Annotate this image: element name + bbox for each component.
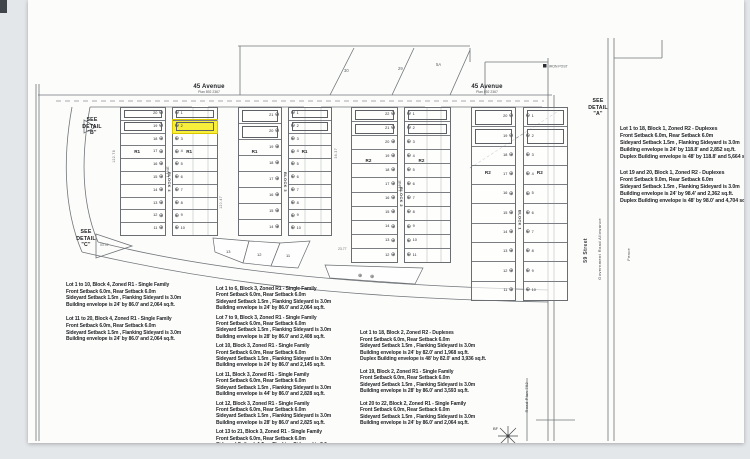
lot-number: 7 — [297, 189, 299, 193]
zoning-note-line: Building envelope is 24' by 86.0' and 2,… — [216, 305, 358, 311]
lot-number: 20 — [153, 112, 157, 116]
utility-marker-icon: ⊕ — [526, 192, 531, 198]
lot-number: 6 — [413, 183, 415, 187]
lot: 17⊕ — [239, 171, 281, 187]
utility-marker-icon: ⊕ — [391, 196, 396, 202]
lot: ⊕7 — [524, 223, 567, 242]
lot: ⊕5 — [524, 184, 567, 203]
lot-number: 15 — [385, 211, 389, 215]
lot-number: 4 — [532, 173, 534, 177]
lot-column-e-block-4: ⊕1⊕2⊕3⊕4⊕5⊕6⊕7⊕8⊕9⊕10R1 — [172, 107, 218, 236]
utility-marker-icon: ⊕ — [275, 113, 280, 119]
lot: 17⊕ — [121, 145, 165, 158]
lot: 18⊕ — [352, 163, 397, 177]
lot: ⊕10 — [289, 222, 331, 235]
utility-marker-icon: ⊕ — [509, 153, 514, 159]
lot: ⊕9 — [173, 209, 217, 222]
lot-number: 6 — [181, 176, 183, 180]
utility-marker-icon: ⊕ — [407, 182, 412, 188]
zone-label: R1 — [186, 150, 192, 155]
utility-marker-icon: ⊕ — [175, 150, 180, 156]
utility-marker-icon: ⊕ — [159, 150, 164, 156]
plat-group-block-4: 20⊕19⊕18⊕17⊕16⊕15⊕14⊕13⊕12⊕11⊕R1⊕1⊕2⊕3⊕4… — [120, 107, 218, 236]
utility-marker-icon: ⊕ — [407, 253, 412, 259]
dimension-text: 53.92 — [100, 244, 109, 247]
note-column-2: Lot 1 to 18, Block 2, Zoned R2 - Duplexe… — [360, 330, 510, 433]
lot-number: 15 — [503, 212, 507, 216]
utility-marker-icon: ⊕ — [175, 175, 180, 181]
zoning-note-block: Lot 11 to 20, Block 4, Zoned R1 - Single… — [66, 316, 216, 342]
lot-column-e-block-3: ⊕1⊕2⊕3⊕4⊕5⊕6⊕7⊕8⊕9⊕10R1 — [288, 107, 332, 236]
utility-marker-icon: ⊕ — [275, 145, 280, 151]
utility-marker-icon: ⊕ — [526, 134, 531, 140]
utility-marker-icon: ⊕ — [391, 182, 396, 188]
zone-label: R1 — [134, 150, 140, 155]
utility-marker-icon: ⊕ — [275, 225, 280, 231]
utility-marker-icon: ⊕ — [407, 210, 412, 216]
utility-marker-icon: ⊕ — [526, 114, 531, 120]
zoning-note-block: Lot 1 to 18, Block 2, Zoned R2 - Duplexe… — [360, 330, 510, 363]
lot: 14⊕ — [472, 223, 515, 242]
scan-corner-artifact — [0, 0, 7, 13]
zoning-note-line: Building envelope is 24' by 118.8' and 2… — [620, 147, 744, 154]
plan-number: Plan 892 2367 — [178, 90, 240, 94]
utility-marker-icon: ⊕ — [159, 226, 164, 232]
utility-marker-icon: ⊕ — [159, 201, 164, 207]
zoning-note-line: Duplex Building envelope is 48' by 98.0'… — [620, 198, 744, 205]
utility-marker-icon: ⊕ — [391, 168, 396, 174]
lot-column-w-block-2: 22⊕21⊕20⊕19⊕18⊕17⊕16⊕15⊕14⊕13⊕12⊕R2 — [351, 107, 398, 263]
utility-marker-icon: ⊕ — [275, 209, 280, 215]
utility-marker-icon: ⊕ — [175, 137, 180, 143]
zoning-note-line: Duplex Building envelope is 48' by 82.0'… — [360, 356, 510, 363]
lot-number: 13 — [385, 239, 389, 243]
lot: ⊕2 — [405, 121, 450, 135]
lot-number: 7 — [181, 189, 183, 193]
lot: 22⊕ — [352, 108, 397, 121]
zone-label: R1 — [302, 150, 308, 155]
zoning-note-line: Lot 11 to 20, Block 4, Zoned R1 - Single… — [66, 316, 216, 323]
lot: 19⊕ — [121, 120, 165, 133]
lot: 15⊕ — [121, 171, 165, 184]
lot-number: 8 — [532, 250, 534, 254]
lot-number: 1 — [413, 113, 415, 117]
lot: ⊕1 — [289, 108, 331, 120]
dimension-text: 120.47 — [220, 196, 223, 209]
lot-number: 13 — [503, 250, 507, 254]
utility-marker-icon: ⊕ — [159, 111, 164, 117]
see-detail-a-callout: SEE DETAIL "A" — [580, 98, 616, 118]
lot: ⊕4 — [173, 145, 217, 158]
lot: ⊕8 — [524, 242, 567, 261]
utility-marker-icon: ⊕ — [509, 230, 514, 236]
lot: 20⊕ — [472, 108, 515, 126]
utility-marker-icon: ⊕ — [407, 168, 412, 174]
utility-marker-icon: ⊕ — [509, 114, 514, 120]
utility-marker-icon: ⊕ — [526, 230, 531, 236]
utility-marker-icon: ⊕ — [391, 253, 396, 259]
zoning-note-block: Lot 10, Block 3, Zoned R1 - Single Famil… — [216, 343, 358, 369]
lot-number: 17 — [269, 178, 273, 182]
lot: ⊕2 — [524, 126, 567, 145]
lot: ⊕6 — [524, 203, 567, 222]
lane-block-2: LANE — [398, 107, 404, 263]
lot-number: 5 — [297, 163, 299, 167]
lot-number: 19 — [269, 146, 273, 150]
lot: 21⊕ — [239, 108, 281, 123]
lot: ⊕7 — [173, 184, 217, 197]
lot-number: 9 — [532, 270, 534, 274]
lot-number: 11 — [413, 254, 417, 258]
zoning-note-line: Building envelope is 28' by 86.0' and 2,… — [216, 334, 358, 340]
utility-marker-icon: ⊕ — [526, 172, 531, 178]
lot-number: 16 — [503, 192, 507, 196]
lot: ⊕8 — [405, 206, 450, 220]
lot-number: 15 — [269, 210, 273, 214]
lot: 14⊕ — [121, 184, 165, 197]
lot: 11⊕ — [472, 281, 515, 300]
lot-number: 12 — [503, 270, 507, 274]
dimension-text: 122.78 — [113, 150, 116, 163]
utility-marker-icon: ⊕ — [407, 196, 412, 202]
lot-number: 22 — [385, 113, 389, 117]
note-column-0: Lot 1 to 10, Block 4, Zoned R1 - Single … — [66, 282, 216, 351]
lot-number: 14 — [503, 231, 507, 235]
lot-number: 15 — [153, 176, 157, 180]
utility-marker-icon: ⊕ — [509, 288, 514, 294]
utility-marker-icon: ⊕ — [159, 214, 164, 220]
lot-number: 2 — [532, 135, 534, 139]
utility-marker-icon: ⊕ — [509, 192, 514, 198]
utility-marker-icon: ⊕ — [407, 154, 412, 160]
zoning-note-block: Lot 19 and 20, Block 1, Zoned R2 - Duple… — [620, 170, 744, 205]
lot: 18⊕ — [121, 133, 165, 146]
lot: 19⊕ — [472, 126, 515, 145]
lot: ⊕3 — [289, 133, 331, 146]
utility-marker-icon: ⊕ — [291, 111, 296, 117]
lot: ⊕5 — [173, 158, 217, 171]
zoning-note-block: Lot 12, Block 3, Zoned R1 - Single Famil… — [216, 401, 358, 427]
zoning-note-line: Lot 1 to 10, Block 4, Zoned R1 - Single … — [66, 282, 216, 289]
plan-number: Plan 892 2367 — [456, 90, 518, 94]
utility-marker-icon: ⊕ — [391, 210, 396, 216]
lot: ⊕5 — [289, 158, 331, 171]
utility-marker-icon: ⊕ — [407, 112, 412, 118]
utility-marker-icon: ⊕ — [175, 201, 180, 207]
zone-label: R2 — [537, 171, 543, 176]
lot-number: 16 — [269, 194, 273, 198]
lot: ⊕7 — [289, 184, 331, 197]
zoning-note-line: Building envelope is 28' by 86.0' and 2,… — [216, 420, 358, 426]
lot: 21⊕ — [352, 121, 397, 135]
utility-marker-icon: ⊕ — [159, 188, 164, 194]
lot: ⊕8 — [289, 197, 331, 210]
utility-marker-icon: ⊕ — [275, 161, 280, 167]
plat-scan-page: 13 12 11 ⊕ ⊕ 30 29 5A IRON POST BF 20⊕19… — [0, 0, 750, 459]
note-column-3: Lot 1 to 18, Block 1, Zoned R2 - Duplexe… — [620, 126, 744, 214]
utility-marker-icon: ⊕ — [175, 111, 180, 117]
zoning-note-block: Lot 7 to 9, Block 3, Zoned R1 - Single F… — [216, 315, 358, 341]
lot-number: 8 — [413, 211, 415, 215]
lot-number: 4 — [181, 150, 183, 154]
lot-number: 18 — [503, 154, 507, 158]
lot-number: 14 — [269, 226, 273, 230]
lot: 15⊕ — [352, 206, 397, 220]
lot-number: 12 — [385, 254, 389, 258]
lot-number: 18 — [269, 162, 273, 166]
utility-marker-icon: ⊕ — [291, 150, 296, 156]
zoning-note-line: Lot 19 and 20, Block 1, Zoned R2 - Duple… — [620, 170, 744, 177]
utility-marker-icon: ⊕ — [526, 153, 531, 159]
zoning-note-block: Lot 13 to 21, Block 3, Zoned R1 - Single… — [216, 429, 358, 443]
lot: ⊕9 — [405, 220, 450, 234]
lane-block-1 — [516, 107, 523, 301]
lot-number: 21 — [269, 114, 273, 118]
zoning-note-line: Sideyard Setback 1.5m , Flanking Sideyar… — [66, 330, 216, 337]
lot: ⊕8 — [173, 197, 217, 210]
lot: 17⊕ — [352, 177, 397, 191]
lot: 14⊕ — [239, 219, 281, 235]
lot-column-w-block-1: 20⊕19⊕18⊕17⊕16⊕15⊕14⊕13⊕12⊕11⊕R2 — [471, 107, 516, 301]
zoning-note-line: Duplex Building envelope is 48' by 118.8… — [620, 154, 744, 161]
utility-marker-icon: ⊕ — [291, 214, 296, 220]
lot: ⊕1 — [405, 108, 450, 121]
lot: ⊕4 — [524, 165, 567, 184]
lot: 18⊕ — [239, 155, 281, 171]
lot-number: 20 — [269, 130, 273, 134]
lot-number: 20 — [385, 141, 389, 145]
dimension-text: 23.77 — [338, 248, 347, 251]
lot-number: 8 — [181, 202, 183, 206]
gov-road-allowance-label: Government Road Allowance — [598, 218, 602, 280]
lot-number: 5 — [532, 192, 534, 196]
lot-number: 11 — [503, 289, 507, 293]
lot-number: 18 — [153, 138, 157, 142]
utility-marker-icon: ⊕ — [391, 225, 396, 231]
zoning-note-line: Sideyard Setback 1.5m , Flanking Sideyar… — [216, 442, 358, 443]
zone-label: R2 — [485, 171, 491, 176]
lot: ⊕1 — [524, 108, 567, 126]
utility-marker-icon: ⊕ — [291, 226, 296, 232]
lot-number: 9 — [181, 214, 183, 218]
lot-number: 17 — [385, 183, 389, 187]
zoning-note-line: Building envelope is 44' by 86.0' and 2,… — [216, 391, 358, 397]
utility-marker-icon: ⊕ — [291, 137, 296, 143]
zoning-note-line: Front Setback 6.0m, Rear Setback 6.0m — [66, 323, 216, 330]
utility-marker-icon: ⊕ — [526, 249, 531, 255]
lot-number: 10 — [532, 289, 536, 293]
lot-number: 1 — [532, 115, 534, 119]
avenue-45-label-west: 45 Avenue Plan 892 2367 — [178, 84, 240, 94]
lot-number: 3 — [413, 141, 415, 145]
zoning-note-line: Building envelope is 24' by 86.0' and 2,… — [66, 336, 216, 343]
lot: 17⊕ — [472, 165, 515, 184]
lot: 20⊕ — [121, 108, 165, 120]
plat-group-block-1: 20⊕19⊕18⊕17⊕16⊕15⊕14⊕13⊕12⊕11⊕R2⊕1⊕2⊕3⊕4… — [471, 107, 568, 301]
utility-marker-icon: ⊕ — [175, 214, 180, 220]
lot-number: 16 — [153, 163, 157, 167]
lot-highlighted: ⊕2 — [173, 120, 217, 133]
lot-number: 11 — [153, 227, 157, 231]
lot-number: 10 — [181, 227, 185, 231]
fence-label: Fence — [628, 248, 632, 261]
lot-column-e-block-2: ⊕1⊕2⊕3⊕4⊕5⊕6⊕7⊕8⊕9⊕10⊕11R2 — [404, 107, 451, 263]
lot: 16⊕ — [472, 184, 515, 203]
zoning-note-line: Building envelope is 24' by 86.0' and 2,… — [360, 420, 510, 427]
lot: ⊕10 — [405, 234, 450, 248]
lot-number: 4 — [413, 155, 415, 159]
utility-marker-icon: ⊕ — [175, 162, 180, 168]
zoning-note-line: Front Setback 6.0m, Rear Setback 6.0m — [66, 289, 216, 296]
lot-number: 21 — [385, 127, 389, 131]
lot-number: 3 — [181, 138, 183, 142]
utility-marker-icon: ⊕ — [526, 269, 531, 275]
zoning-note-line: Sideyard Setback 1.5m , Flanking Sideyar… — [620, 140, 744, 147]
utility-marker-icon: ⊕ — [407, 225, 412, 231]
lot-number: 4 — [297, 150, 299, 154]
lot: 16⊕ — [352, 192, 397, 206]
zoning-note-block: Lot 11, Block 3, Zoned R1 - Single Famil… — [216, 372, 358, 398]
utility-marker-icon: ⊕ — [159, 162, 164, 168]
utility-marker-icon: ⊕ — [291, 201, 296, 207]
lot-number: 5 — [181, 163, 183, 167]
lot: 13⊕ — [352, 234, 397, 248]
utility-marker-icon: ⊕ — [509, 249, 514, 255]
zoning-note-line: Sideyard Setback 1.5m , Flanking Sideyar… — [66, 295, 216, 302]
utility-marker-icon: ⊕ — [275, 129, 280, 135]
lot: 16⊕ — [239, 187, 281, 203]
block-label: BLOCK 3 — [283, 172, 287, 192]
street-59-label: 59 Street — [584, 238, 589, 263]
zoning-note-line: Front Setback 6.0m, Rear Setback 6.0m — [620, 133, 744, 140]
lot: 20⊕ — [352, 135, 397, 149]
lot: ⊕9 — [524, 261, 567, 280]
block-label: BLOCK 4 — [167, 172, 171, 192]
lot: ⊕3 — [405, 135, 450, 149]
lot-number: 12 — [153, 214, 157, 218]
lot: 13⊕ — [121, 197, 165, 210]
lot-number: 1 — [297, 112, 299, 116]
block-label: BLOCK 2 — [399, 188, 403, 208]
road-plan-label: Road Plan 792 — [526, 382, 530, 412]
block-label: BLOCK 1 — [518, 210, 522, 230]
lot: ⊕4 — [289, 145, 331, 158]
utility-marker-icon: ⊕ — [159, 175, 164, 181]
utility-marker-icon: ⊕ — [159, 124, 164, 130]
lot: ⊕3 — [173, 133, 217, 146]
lot: 20⊕ — [239, 123, 281, 139]
avenue-45-label-east: 45 Avenue Plan 892 2367 — [456, 84, 518, 94]
lot-number: 9 — [297, 214, 299, 218]
zoning-note-line: Front Setback 9.0m, Rear Setback 6.0m — [620, 177, 744, 184]
see-detail-c-callout: SEE DETAIL "C" — [68, 229, 104, 249]
lot: 14⊕ — [352, 220, 397, 234]
utility-marker-icon: ⊕ — [509, 269, 514, 275]
lot: 19⊕ — [352, 149, 397, 163]
utility-marker-icon: ⊕ — [291, 188, 296, 194]
zoning-note-block: Lot 20 to 22, Block 2, Zoned R1 - Single… — [360, 401, 510, 427]
lot: ⊕10 — [524, 281, 567, 300]
utility-marker-icon: ⊕ — [159, 137, 164, 143]
lot-number: 7 — [413, 197, 415, 201]
lot-number: 5 — [413, 169, 415, 173]
lot-number: 1 — [181, 112, 183, 116]
lot: ⊕4 — [405, 149, 450, 163]
zoning-note-line: Building envelope is 24' by 86.0' and 2,… — [66, 302, 216, 309]
utility-marker-icon: ⊕ — [526, 211, 531, 217]
zoning-note-block: Lot 19, Block 2, Zoned R1 - Single Famil… — [360, 369, 510, 395]
lot-number: 6 — [532, 212, 534, 216]
lot-number: 17 — [503, 173, 507, 177]
lot-number: 2 — [413, 127, 415, 131]
utility-marker-icon: ⊕ — [509, 211, 514, 217]
lot-number: 10 — [413, 239, 417, 243]
lot-number: 14 — [153, 189, 157, 193]
utility-marker-icon: ⊕ — [291, 175, 296, 181]
lot-number: 2 — [181, 125, 183, 129]
lot: ⊕6 — [173, 171, 217, 184]
lot: 11⊕ — [121, 222, 165, 235]
utility-marker-icon: ⊕ — [407, 239, 412, 245]
utility-marker-icon: ⊕ — [175, 226, 180, 232]
lot-column-w-block-4: 20⊕19⊕18⊕17⊕16⊕15⊕14⊕13⊕12⊕11⊕R1 — [120, 107, 166, 236]
lot-number: 6 — [297, 176, 299, 180]
lot-number: 3 — [297, 138, 299, 142]
lot: 15⊕ — [472, 203, 515, 222]
lot: 12⊕ — [121, 209, 165, 222]
lot-number: 19 — [385, 155, 389, 159]
zoning-note-block: Lot 1 to 18, Block 1, Zoned R2 - Duplexe… — [620, 126, 744, 161]
lot-number: 18 — [385, 169, 389, 173]
lot-column-e-block-1: ⊕1⊕2⊕3⊕4⊕5⊕6⊕7⊕8⊕9⊕10R2 — [523, 107, 568, 301]
lot-number: 14 — [385, 225, 389, 229]
lot-number: 20 — [503, 115, 507, 119]
zoning-note-line: Building envelope is 28' by 86.0' and 3,… — [360, 388, 510, 395]
lot-number: 13 — [153, 202, 157, 206]
dimension-text: 36.37 — [335, 148, 338, 159]
zone-label: R1 — [252, 150, 258, 155]
lot: ⊕7 — [405, 192, 450, 206]
lot: ⊕1 — [173, 108, 217, 120]
lot-number: 19 — [153, 125, 157, 129]
lot-number: 10 — [297, 227, 301, 231]
lot: ⊕6 — [405, 177, 450, 191]
lot: ⊕5 — [405, 163, 450, 177]
lot-number: 3 — [532, 154, 534, 158]
lot-number: 7 — [532, 231, 534, 235]
utility-marker-icon: ⊕ — [407, 126, 412, 132]
utility-marker-icon: ⊕ — [391, 154, 396, 160]
zoning-note-line: Building envelope is 24' by 86.0' and 2,… — [216, 362, 358, 368]
note-column-1: Lot 1 to 6, Block 3, Zoned R1 - Single F… — [216, 286, 358, 443]
lot-number: 16 — [385, 197, 389, 201]
lot: ⊕3 — [524, 146, 567, 165]
utility-marker-icon: ⊕ — [391, 126, 396, 132]
lot: ⊕2 — [289, 120, 331, 133]
lot-number: 9 — [413, 225, 415, 229]
lot-number: 2 — [297, 125, 299, 129]
utility-marker-icon: ⊕ — [407, 140, 412, 146]
zone-label: R2 — [366, 159, 372, 164]
lot-number: 19 — [503, 135, 507, 139]
lot: ⊕9 — [289, 209, 331, 222]
lot: 18⊕ — [472, 146, 515, 165]
utility-marker-icon: ⊕ — [291, 162, 296, 168]
utility-marker-icon: ⊕ — [275, 193, 280, 199]
utility-marker-icon: ⊕ — [175, 188, 180, 194]
lot: ⊕10 — [173, 222, 217, 235]
plat-group-block-2: 22⊕21⊕20⊕19⊕18⊕17⊕16⊕15⊕14⊕13⊕12⊕R2⊕1⊕2⊕… — [351, 107, 451, 263]
